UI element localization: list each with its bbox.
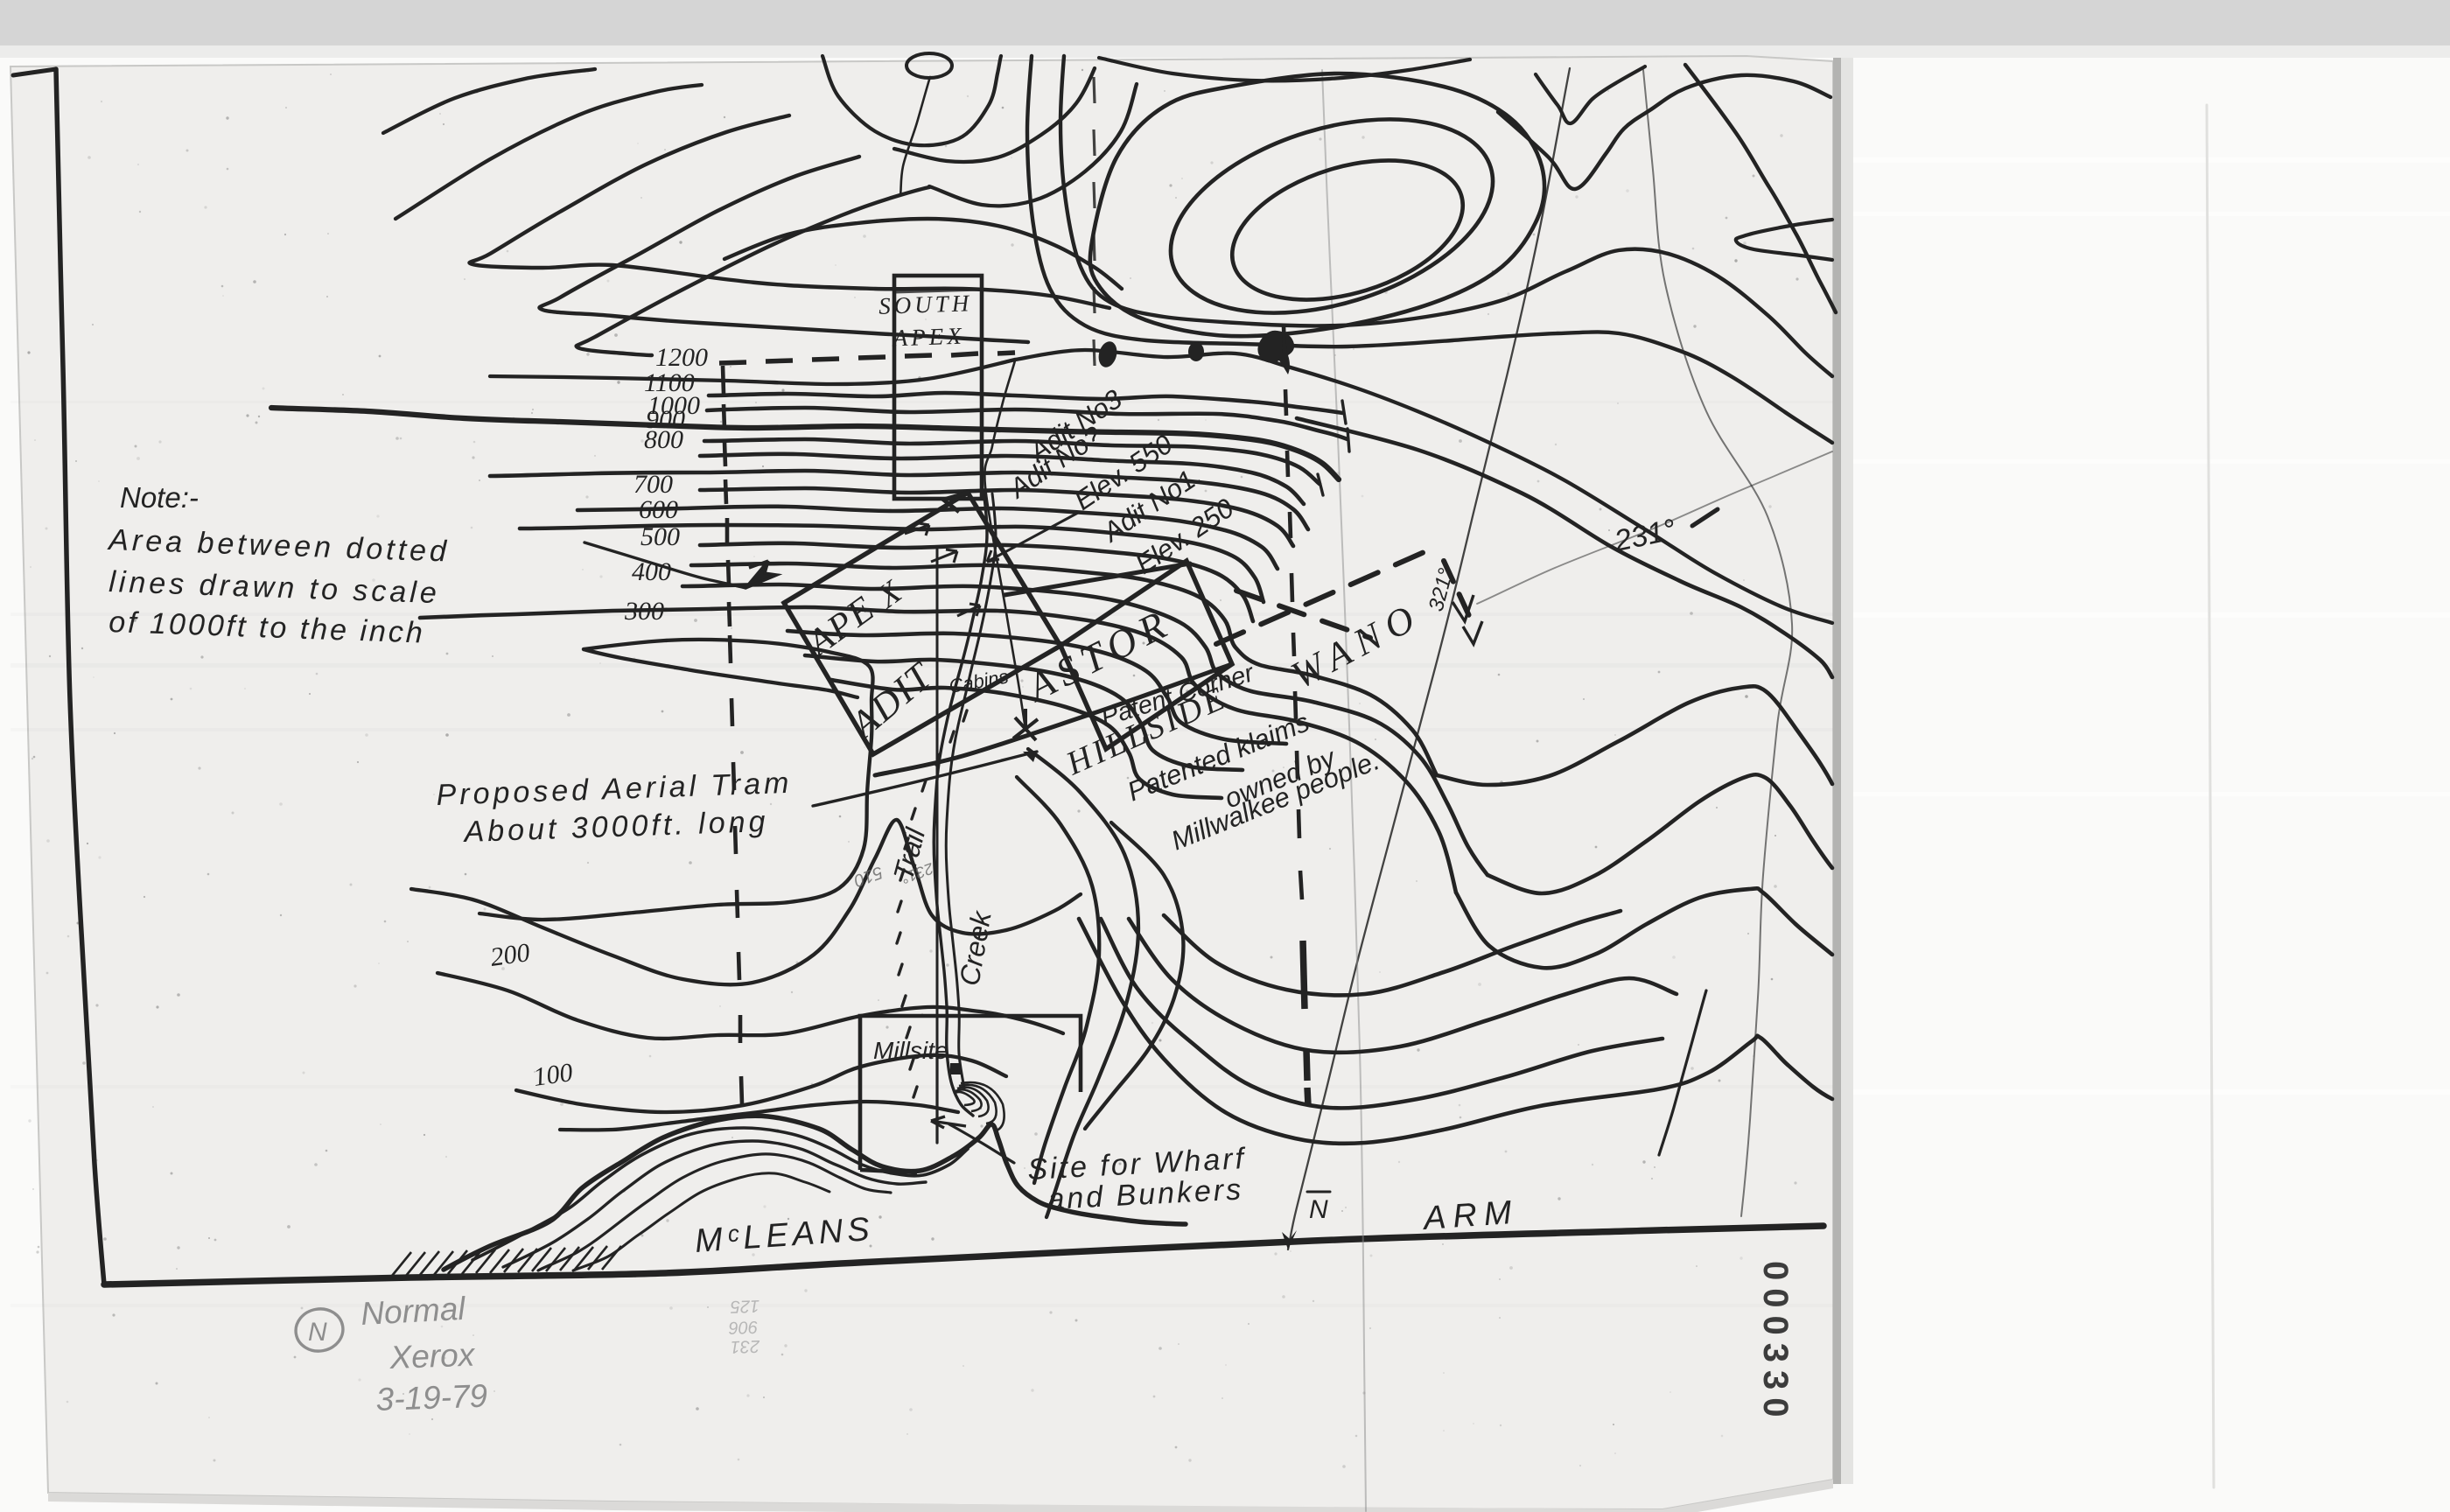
svg-text:Normal: Normal <box>360 1291 467 1332</box>
svg-text:125: 125 <box>730 1296 760 1316</box>
svg-text:500: 500 <box>640 522 680 551</box>
svg-text:ARM: ARM <box>1421 1194 1520 1238</box>
svg-text:300: 300 <box>624 597 664 626</box>
svg-text:000330: 000330 <box>1756 1261 1795 1424</box>
svg-text:906: 906 <box>728 1317 759 1337</box>
svg-text:N: N <box>1309 1195 1328 1224</box>
svg-text:N: N <box>308 1318 327 1347</box>
svg-text:Xerox: Xerox <box>388 1337 477 1375</box>
svg-text:3-19-79: 3-19-79 <box>375 1378 488 1417</box>
svg-text:400: 400 <box>632 557 671 586</box>
svg-text:600: 600 <box>639 495 678 524</box>
svg-text:Millsite: Millsite <box>873 1037 948 1064</box>
svg-text:Note:-: Note:- <box>120 481 199 514</box>
svg-text:231: 231 <box>730 1336 760 1356</box>
svg-text:200: 200 <box>488 938 531 972</box>
svg-text:100: 100 <box>531 1058 574 1092</box>
svg-text:SOUTH: SOUTH <box>878 290 973 319</box>
svg-text:APEX: APEX <box>891 323 965 352</box>
svg-text:800: 800 <box>644 425 683 454</box>
